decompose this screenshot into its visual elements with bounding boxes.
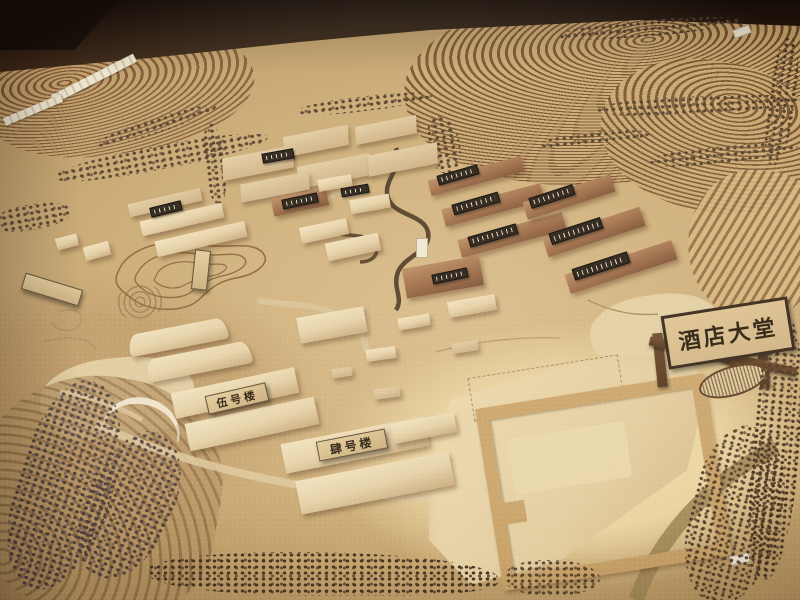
tree-band-foreground [505,560,600,596]
footprint-inner-patch [507,421,632,495]
white-marker [416,238,428,258]
footprint-step [490,500,527,527]
model-photo: 酒店大堂 伍号楼 肆号楼 [0,0,800,600]
